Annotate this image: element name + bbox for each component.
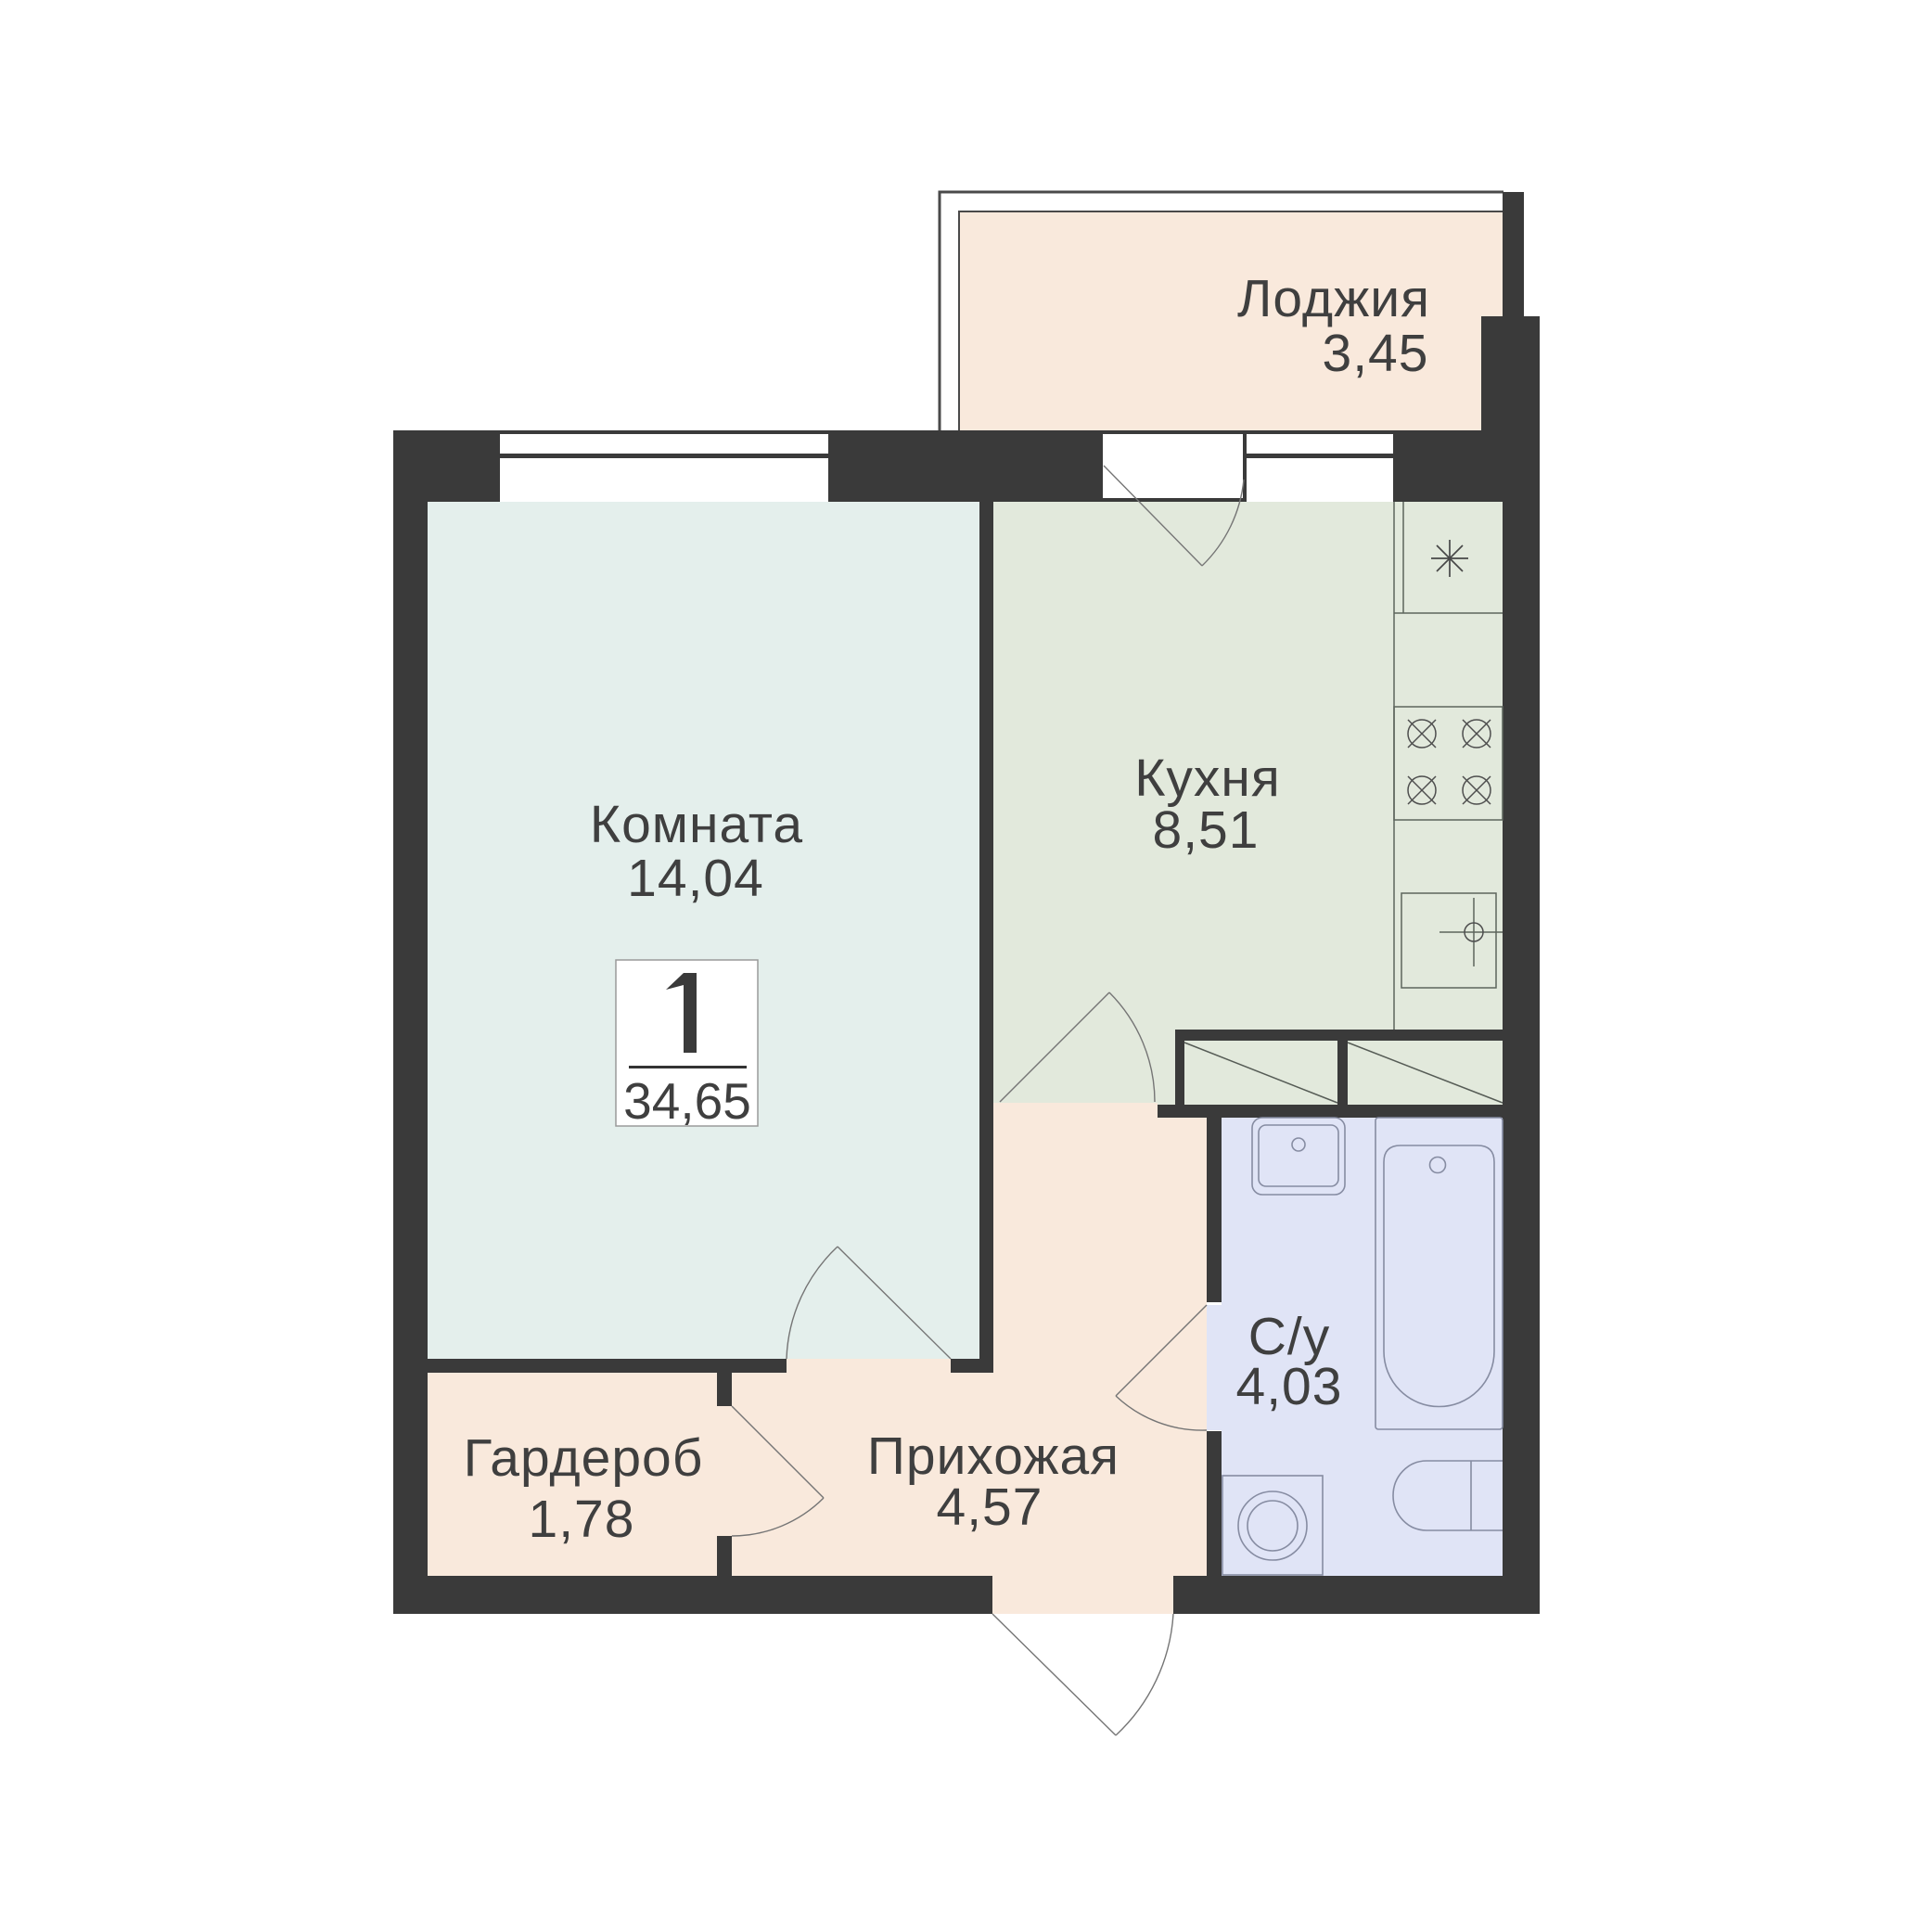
svg-text:4,57: 4,57: [937, 1478, 1043, 1537]
svg-text:34,65: 34,65: [623, 1072, 751, 1130]
svg-text:Лоджия: Лоджия: [1237, 269, 1430, 328]
svg-text:14,04: 14,04: [627, 849, 764, 908]
svg-text:8,51: 8,51: [1153, 800, 1260, 860]
svg-text:Кухня: Кухня: [1134, 748, 1281, 808]
svg-text:3,45: 3,45: [1323, 324, 1429, 383]
svg-text:Гардероб: Гардероб: [464, 1428, 704, 1488]
svg-text:Комната: Комната: [590, 795, 803, 854]
svg-text:4,03: 4,03: [1236, 1357, 1343, 1416]
svg-text:1,78: 1,78: [529, 1490, 635, 1549]
